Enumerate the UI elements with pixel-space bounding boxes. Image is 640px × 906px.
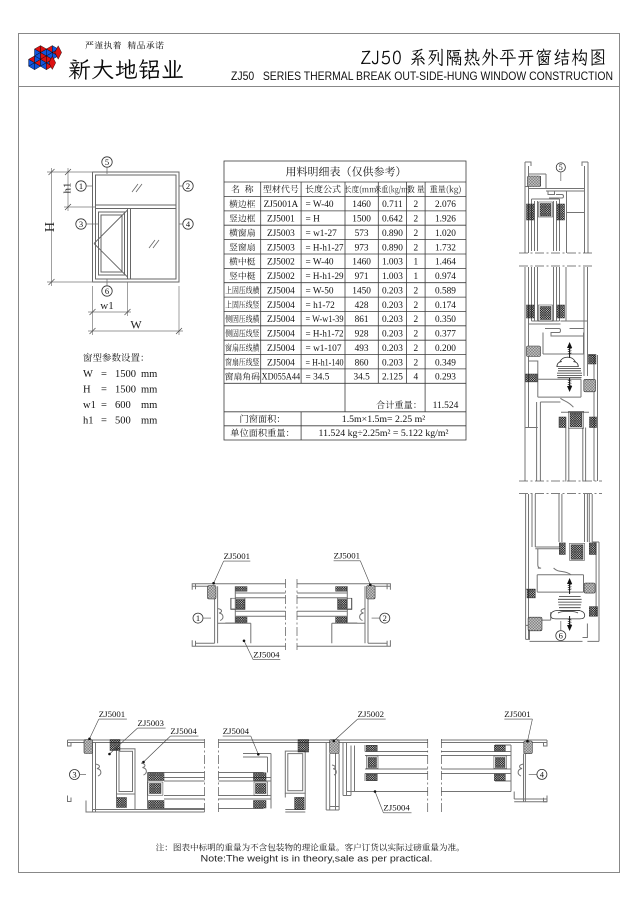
svg-text:ZJ5004: ZJ5004 xyxy=(170,726,197,736)
svg-text:0.203: 0.203 xyxy=(382,330,403,340)
svg-text:ZJ5004: ZJ5004 xyxy=(267,344,295,354)
svg-text:= H-h1-27: = H-h1-27 xyxy=(306,243,344,253)
svg-text:0.174: 0.174 xyxy=(435,301,456,311)
svg-text:H: H xyxy=(83,385,91,396)
svg-text:ZJ5003: ZJ5003 xyxy=(267,243,295,253)
svg-text:1: 1 xyxy=(196,613,200,623)
svg-text:h1: h1 xyxy=(62,183,74,194)
svg-text:428: 428 xyxy=(355,301,369,311)
svg-text:500: 500 xyxy=(115,416,131,427)
svg-text:0.203: 0.203 xyxy=(382,344,403,354)
svg-text:ZJ5001: ZJ5001 xyxy=(267,215,295,225)
svg-text:2: 2 xyxy=(413,358,418,368)
svg-text:0.350: 0.350 xyxy=(435,315,456,325)
svg-text:1: 1 xyxy=(79,181,83,191)
svg-text:1: 1 xyxy=(413,258,418,268)
svg-text:2.125: 2.125 xyxy=(382,373,403,383)
svg-text:mm: mm xyxy=(141,369,157,380)
svg-text:ZJ5004: ZJ5004 xyxy=(267,330,295,340)
svg-text:2: 2 xyxy=(383,613,387,623)
svg-text:= h1-72: = h1-72 xyxy=(306,301,336,311)
svg-text:XD055A44: XD055A44 xyxy=(262,373,301,383)
svg-text:ZJ50 SERIES THERMAL BREAK OU: ZJ50 SERIES THERMAL BREAK OUT-SIDE-HUNG … xyxy=(231,69,613,83)
svg-text:0.589: 0.589 xyxy=(435,286,456,296)
svg-text:=: = xyxy=(101,369,107,380)
svg-text:1.464: 1.464 xyxy=(435,258,456,268)
svg-text:1500: 1500 xyxy=(115,369,136,380)
svg-text:2: 2 xyxy=(413,215,418,225)
svg-text:= H-h1-72: = H-h1-72 xyxy=(306,330,344,340)
svg-text:ZJ5001: ZJ5001 xyxy=(504,709,530,719)
svg-text:h1: h1 xyxy=(83,416,94,427)
svg-text:1.003: 1.003 xyxy=(382,258,403,268)
svg-text:ZJ5003: ZJ5003 xyxy=(267,229,295,239)
svg-text:W: W xyxy=(83,369,93,380)
svg-text:0.203: 0.203 xyxy=(382,315,403,325)
svg-text:928: 928 xyxy=(355,330,369,340)
svg-text:0.203: 0.203 xyxy=(382,301,403,311)
svg-text:ZJ5004: ZJ5004 xyxy=(267,315,295,325)
svg-text:2: 2 xyxy=(413,301,418,311)
svg-text:0.711: 0.711 xyxy=(382,200,403,210)
svg-text:mm: mm xyxy=(141,416,157,427)
svg-text:4: 4 xyxy=(186,219,191,229)
svg-text:ZJ5004: ZJ5004 xyxy=(267,358,295,368)
svg-text:=: = xyxy=(101,416,107,427)
svg-text:0.377: 0.377 xyxy=(435,330,456,340)
svg-text:2.076: 2.076 xyxy=(435,200,456,210)
svg-text:= W-w1-39: = W-w1-39 xyxy=(306,315,344,325)
svg-text:= 34.5: = 34.5 xyxy=(306,373,330,383)
svg-text:1.926: 1.926 xyxy=(435,215,456,225)
svg-text:1.5m×1.5m= 2.25 m²: 1.5m×1.5m= 2.25 m² xyxy=(342,414,425,425)
svg-text:ZJ5002: ZJ5002 xyxy=(358,709,384,719)
svg-text:4: 4 xyxy=(413,373,418,383)
svg-text:0.203: 0.203 xyxy=(382,358,403,368)
svg-text:0.293: 0.293 xyxy=(435,373,456,383)
svg-text:0.974: 0.974 xyxy=(435,272,456,282)
svg-text:973: 973 xyxy=(355,243,369,253)
svg-text:3: 3 xyxy=(79,219,83,229)
svg-text:0.642: 0.642 xyxy=(382,215,403,225)
svg-text:493: 493 xyxy=(355,344,369,354)
svg-text:2: 2 xyxy=(413,315,418,325)
svg-text:4: 4 xyxy=(540,769,545,779)
svg-text:H: H xyxy=(43,222,58,232)
svg-text:ZJ5004: ZJ5004 xyxy=(383,803,410,813)
svg-text:1.020: 1.020 xyxy=(435,229,456,239)
svg-text:= H-h1-140: = H-h1-140 xyxy=(306,358,344,368)
svg-text:= w1-107: = w1-107 xyxy=(306,344,342,354)
svg-text:1.732: 1.732 xyxy=(435,243,456,253)
svg-text:= H: = H xyxy=(306,215,321,225)
svg-text:0.349: 0.349 xyxy=(435,358,456,368)
svg-text:1460: 1460 xyxy=(352,258,371,268)
svg-text:2: 2 xyxy=(413,344,418,354)
svg-text:= H-h1-29: = H-h1-29 xyxy=(306,272,344,282)
svg-text:ZJ5004: ZJ5004 xyxy=(267,301,295,311)
svg-text:ZJ5001: ZJ5001 xyxy=(99,709,125,719)
svg-text:0.203: 0.203 xyxy=(382,286,403,296)
svg-text:2: 2 xyxy=(413,229,418,239)
svg-text:ZJ5001: ZJ5001 xyxy=(334,551,360,561)
svg-text:= W-50: = W-50 xyxy=(306,286,334,296)
svg-text:6: 6 xyxy=(105,286,109,296)
svg-text:w1: w1 xyxy=(100,300,113,312)
svg-text:0.890: 0.890 xyxy=(382,229,403,239)
svg-text:ZJ5003: ZJ5003 xyxy=(138,718,165,728)
svg-text:Note:The weight is in theory,s: Note:The weight is in theory,sale as per… xyxy=(201,854,433,865)
svg-text:ZJ5002: ZJ5002 xyxy=(267,272,295,282)
svg-text:1460: 1460 xyxy=(352,200,371,210)
svg-text:11.524 kg÷2.25m² = 5.122 kg/m²: 11.524 kg÷2.25m² = 5.122 kg/m² xyxy=(319,428,449,439)
svg-text:ZJ5004: ZJ5004 xyxy=(223,726,250,736)
svg-text:ZJ5001A: ZJ5001A xyxy=(264,200,299,210)
svg-text:1500: 1500 xyxy=(115,385,136,396)
svg-text:ZJ5002: ZJ5002 xyxy=(267,258,295,268)
svg-text:1500: 1500 xyxy=(352,215,371,225)
svg-text:2: 2 xyxy=(186,181,190,191)
svg-text:=: = xyxy=(101,400,107,411)
svg-text:1: 1 xyxy=(413,272,418,282)
svg-text:2: 2 xyxy=(413,243,418,253)
svg-text:2: 2 xyxy=(413,330,418,340)
svg-text:mm: mm xyxy=(141,400,157,411)
svg-text:ZJ5004: ZJ5004 xyxy=(267,286,295,296)
svg-text:W: W xyxy=(130,318,142,332)
svg-text:2: 2 xyxy=(413,286,418,296)
svg-text:600: 600 xyxy=(115,400,131,411)
svg-text:1.003: 1.003 xyxy=(382,272,403,282)
svg-text:0.200: 0.200 xyxy=(435,344,456,354)
svg-text:ZJ5001: ZJ5001 xyxy=(224,551,250,561)
svg-text:=: = xyxy=(101,385,107,396)
svg-text:6: 6 xyxy=(559,631,563,641)
svg-text:3: 3 xyxy=(72,769,76,779)
svg-text:5: 5 xyxy=(105,157,109,167)
svg-text:2: 2 xyxy=(413,200,418,210)
svg-text:= W-40: = W-40 xyxy=(306,258,334,268)
svg-text:34.5: 34.5 xyxy=(353,373,370,383)
svg-text:= W-40: = W-40 xyxy=(306,200,334,210)
svg-text:= w1-27: = w1-27 xyxy=(306,229,338,239)
svg-text:w1: w1 xyxy=(83,400,96,411)
svg-text:861: 861 xyxy=(355,315,369,325)
svg-text:mm: mm xyxy=(141,385,157,396)
svg-text:1450: 1450 xyxy=(352,286,371,296)
svg-text:0.890: 0.890 xyxy=(382,243,403,253)
svg-text:11.524: 11.524 xyxy=(433,401,459,411)
svg-text:5: 5 xyxy=(559,163,563,172)
svg-text:ZJ5004: ZJ5004 xyxy=(253,650,280,660)
svg-text:573: 573 xyxy=(355,229,369,239)
svg-text:971: 971 xyxy=(355,272,369,282)
svg-text:860: 860 xyxy=(355,358,369,368)
